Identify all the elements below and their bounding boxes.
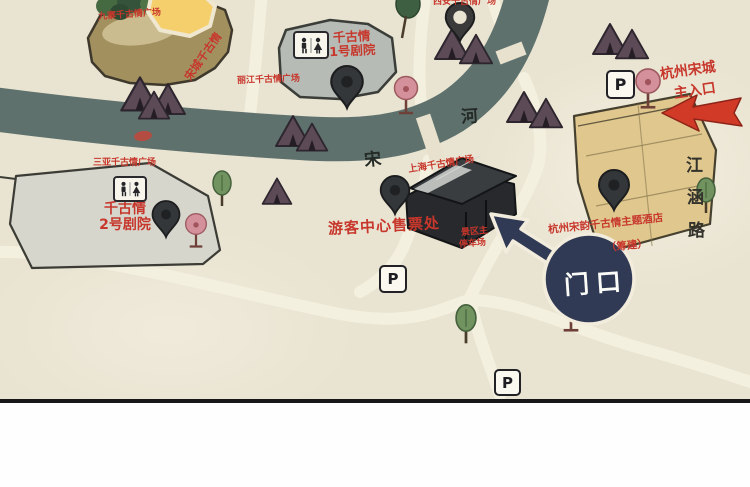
label-theater2-line2: 2号剧院 (94, 218, 156, 234)
map-canvas: 九寨千古情广场 宋城千古情 丽江千古情广场 西安千古情广场 三亚千古情广场 上海… (0, 0, 750, 403)
street-name-char2: 涵 (687, 183, 704, 208)
label-theater1: 千古情 1号剧院 (322, 29, 381, 60)
toilet-figures-icon (298, 37, 324, 54)
green-tree-icon (213, 171, 231, 206)
label-theater2: 千古情 2号剧院 (94, 202, 156, 233)
gate-bubble-label: 门口 (549, 261, 638, 303)
street-name-char1: 江 (686, 151, 703, 176)
river-name-char1: 宋 (363, 144, 383, 171)
page-margin (0, 403, 750, 487)
label-sanya-square: 三亚千古情广场 (93, 158, 156, 168)
house-icon (263, 178, 292, 204)
location-pin-ticket-office (381, 176, 410, 214)
green-tree-icon (456, 305, 476, 344)
label-theater2-line1: 千古情 (94, 202, 156, 218)
river-bridge-upper (498, 48, 524, 58)
parking-sign-icon: P (606, 70, 635, 99)
gate-arrow-icon (491, 214, 556, 263)
screenshot: 九寨千古情广场 宋城千古情 丽江千古情广场 西安千古情广场 三亚千古情广场 上海… (0, 0, 750, 487)
label-xian-square: 西安千古情广场 (433, 0, 496, 7)
house-cluster-top-right (593, 24, 648, 58)
parking-sign-icon: P (379, 265, 407, 293)
parking-sign-icon: P (494, 369, 521, 396)
toilet-icon (113, 176, 147, 202)
toilet-figures-icon (118, 181, 142, 197)
location-pin-theater1 (331, 66, 363, 108)
river-name-char2: 河 (460, 101, 479, 127)
street-name-char3: 路 (688, 216, 705, 241)
toilet-icon (293, 31, 329, 59)
